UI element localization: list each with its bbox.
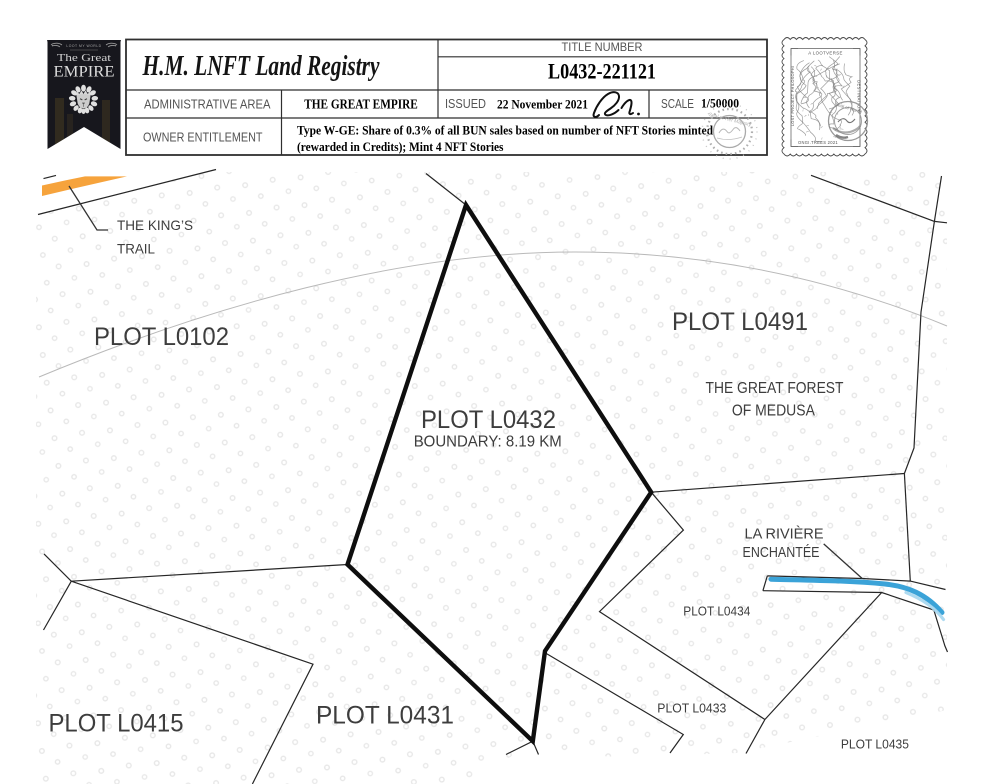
svg-text:LOST PROJECT PHILOSOPHI: LOST PROJECT PHILOSOPHI [790, 66, 795, 126]
svg-text:ENCHANTÉE: ENCHANTÉE [743, 544, 820, 561]
svg-text:THE GREAT FOREST: THE GREAT FOREST [706, 380, 844, 397]
svg-text:PLOT L0431: PLOT L0431 [316, 702, 454, 730]
svg-text:BOUNDARY: 8.19 KM: BOUNDARY: 8.19 KM [414, 434, 562, 451]
svg-text:ONGI.TREES 2021: ONGI.TREES 2021 [798, 140, 838, 145]
svg-text:A LOOTVERSE: A LOOTVERSE [808, 50, 843, 55]
svg-text:PLOT L0102: PLOT L0102 [94, 323, 229, 351]
svg-text:(rewarded in Credits); Mint 4: (rewarded in Credits); Mint 4 NFT Storie… [297, 139, 504, 154]
svg-text:PLOT L0433: PLOT L0433 [657, 701, 726, 716]
svg-text:ADMINISTRATIVE AREA: ADMINISTRATIVE AREA [144, 98, 271, 112]
svg-text:LA RIVIÈRE: LA RIVIÈRE [745, 526, 824, 543]
svg-text:Type W-GE: Share of 0.3% of al: Type W-GE: Share of 0.3% of all BUN sale… [297, 122, 714, 137]
svg-text:TRAIL: TRAIL [117, 241, 155, 257]
svg-text:PLOT L0434: PLOT L0434 [683, 604, 750, 619]
svg-text:The Great: The Great [57, 52, 111, 64]
svg-text:PLOT L0432: PLOT L0432 [421, 406, 556, 434]
svg-text:DESTINATION: DESTINATION [856, 80, 861, 112]
svg-text:EMPIRE: EMPIRE [54, 64, 115, 81]
svg-text:L0432-221121: L0432-221121 [548, 59, 656, 84]
svg-text:22 November 2021: 22 November 2021 [497, 97, 588, 112]
svg-text:THE KING’S: THE KING’S [117, 217, 193, 233]
svg-text:OF MEDUSA: OF MEDUSA [732, 403, 815, 420]
svg-text:H.M. LNFT Land Registry: H.M. LNFT Land Registry [142, 51, 380, 82]
svg-text:THE GREAT EMPIRE: THE GREAT EMPIRE [304, 97, 418, 112]
svg-text:OWNER ENTITLEMENT: OWNER ENTITLEMENT [143, 130, 263, 144]
svg-text:PLOT L0435: PLOT L0435 [841, 737, 909, 752]
svg-text:TITLE NUMBER: TITLE NUMBER [562, 40, 643, 54]
svg-text:ISSUED: ISSUED [445, 97, 486, 111]
svg-text:SCALE: SCALE [661, 97, 694, 111]
svg-text:LOOT MY WORLD: LOOT MY WORLD [66, 44, 101, 48]
svg-text:PLOT L0491: PLOT L0491 [672, 308, 808, 336]
svg-text:PLOT L0415: PLOT L0415 [49, 710, 184, 738]
